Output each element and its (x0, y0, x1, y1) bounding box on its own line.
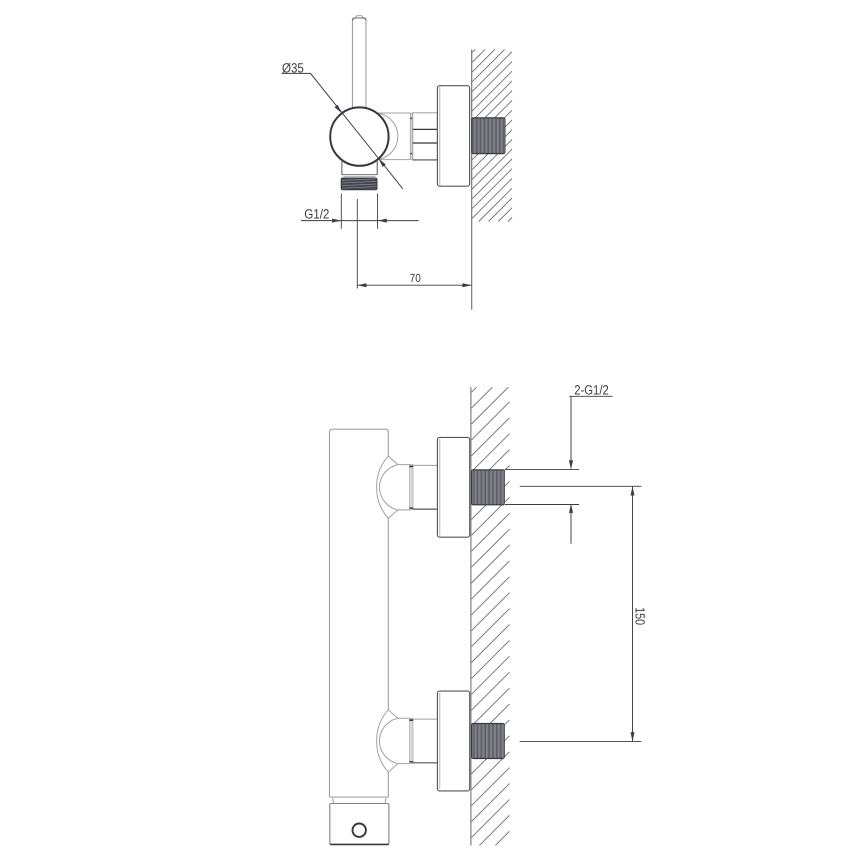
svg-text:Ø35: Ø35 (282, 61, 304, 76)
svg-text:2-G1/2: 2-G1/2 (574, 382, 609, 397)
svg-text:70: 70 (410, 271, 422, 285)
svg-text:150: 150 (632, 607, 647, 625)
svg-text:G1/2: G1/2 (304, 207, 329, 222)
